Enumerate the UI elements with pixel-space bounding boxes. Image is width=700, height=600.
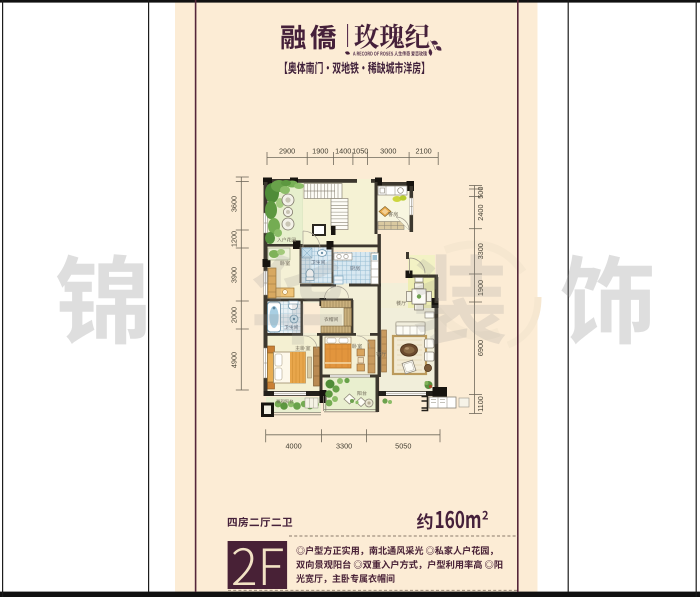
svg-text:1900: 1900: [312, 147, 328, 156]
svg-text:2000: 2000: [230, 307, 239, 323]
svg-text:1050: 1050: [352, 147, 368, 156]
svg-text:2100: 2100: [415, 147, 431, 156]
svg-text:4000: 4000: [285, 442, 301, 451]
svg-text:1100: 1100: [476, 396, 485, 412]
svg-text:2900: 2900: [279, 147, 295, 156]
svg-text:6900: 6900: [476, 340, 485, 356]
svg-text:1400: 1400: [335, 147, 351, 156]
svg-text:3300: 3300: [336, 442, 352, 451]
svg-text:3900: 3900: [230, 267, 239, 283]
svg-text:5050: 5050: [395, 442, 411, 451]
svg-text:1200: 1200: [230, 231, 239, 247]
svg-text:2400: 2400: [476, 204, 485, 220]
svg-text:4900: 4900: [230, 352, 239, 368]
svg-text:3600: 3600: [230, 196, 239, 212]
svg-text:3000: 3000: [380, 147, 396, 156]
svg-text:500: 500: [476, 187, 485, 199]
